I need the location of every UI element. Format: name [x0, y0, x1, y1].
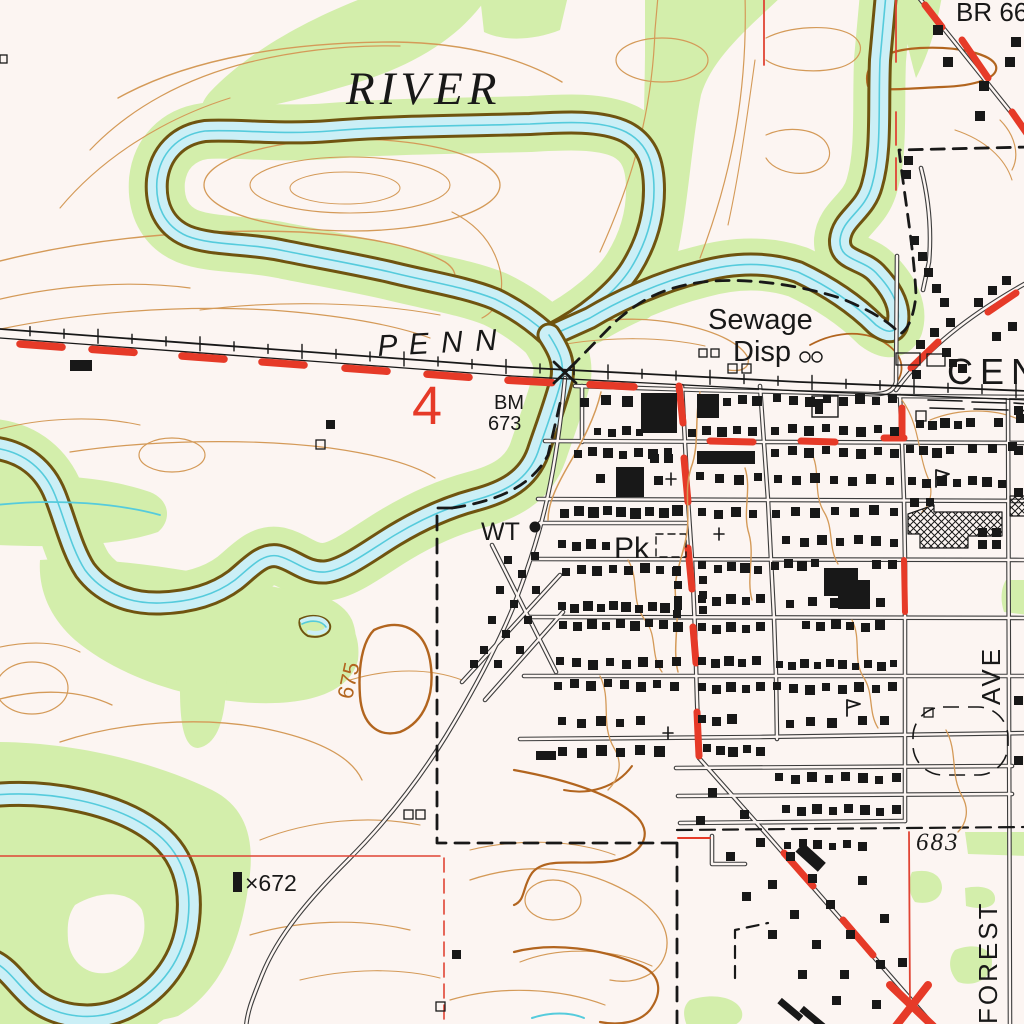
svg-text:AVE: AVE [976, 646, 1006, 705]
svg-text:FOREST: FOREST [973, 901, 1003, 1024]
svg-text:683: 683 [916, 829, 960, 856]
svg-text:RIVER: RIVER [345, 63, 502, 115]
svg-text:Disp: Disp [733, 336, 791, 368]
svg-text:Pk: Pk [614, 532, 650, 565]
svg-text:673: 673 [488, 413, 521, 435]
svg-text:P E N N: P E N N [377, 324, 500, 363]
svg-text:4: 4 [412, 376, 442, 436]
svg-text:BM: BM [494, 392, 524, 414]
svg-text:Sewage: Sewage [708, 304, 813, 336]
svg-text:WT: WT [481, 518, 520, 546]
svg-text:×672: ×672 [245, 870, 297, 896]
svg-text:CEN: CEN [947, 351, 1024, 392]
svg-text:BR 66: BR 66 [956, 0, 1024, 27]
